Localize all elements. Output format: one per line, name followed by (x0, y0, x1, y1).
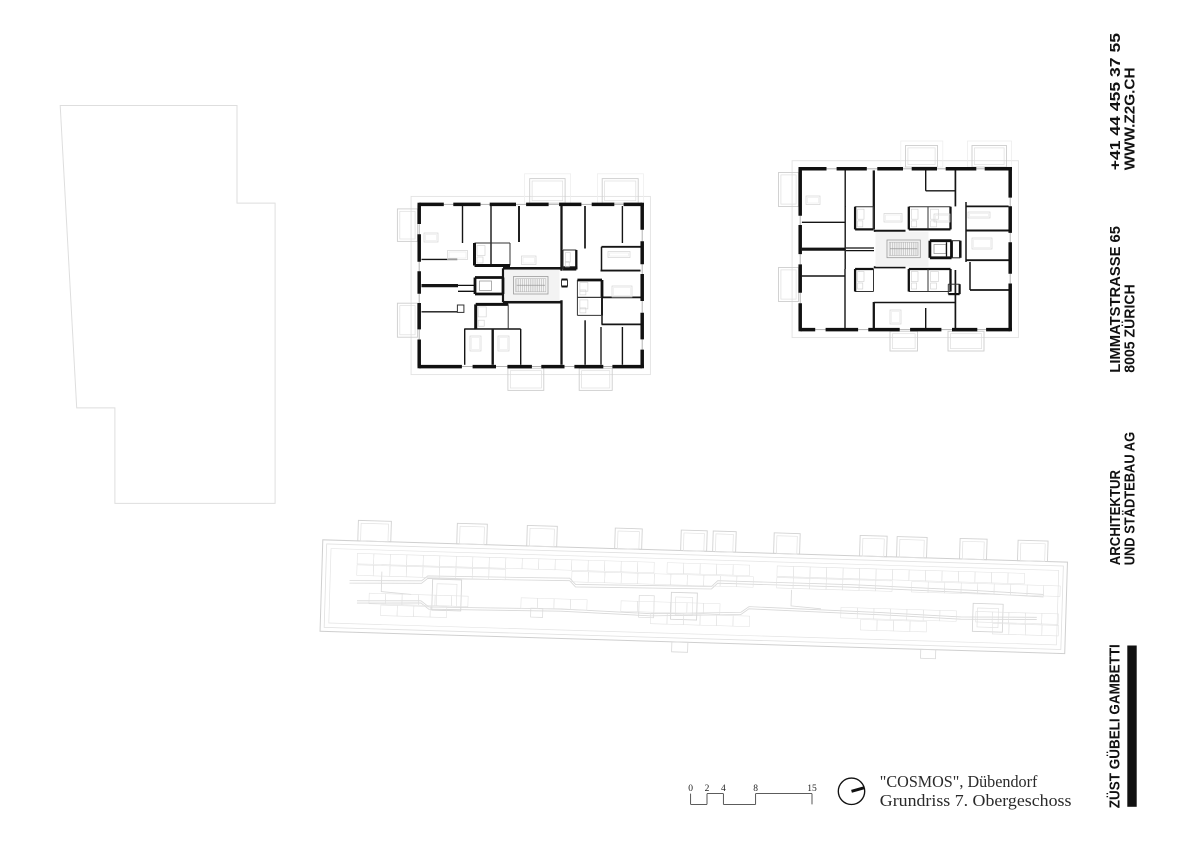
svg-text:15: 15 (807, 784, 817, 794)
svg-text:0: 0 (688, 784, 693, 794)
svg-text:Grundriss 7. Obergeschoss: Grundriss 7. Obergeschoss (880, 791, 1072, 810)
svg-text:ZÜST GÜBELI GAMBETTI: ZÜST GÜBELI GAMBETTI (1106, 644, 1123, 808)
svg-text:8005 ZÜRICH: 8005 ZÜRICH (1122, 284, 1139, 372)
svg-text:2: 2 (705, 784, 710, 794)
svg-text:WWW.Z2G.CH: WWW.Z2G.CH (1123, 67, 1139, 170)
svg-text:UND STÄDTEBAU AG: UND STÄDTEBAU AG (1122, 432, 1139, 565)
svg-text:4: 4 (721, 784, 726, 794)
svg-text:8: 8 (753, 784, 758, 794)
svg-text:"COSMOS", Dübendorf: "COSMOS", Dübendorf (880, 772, 1038, 791)
